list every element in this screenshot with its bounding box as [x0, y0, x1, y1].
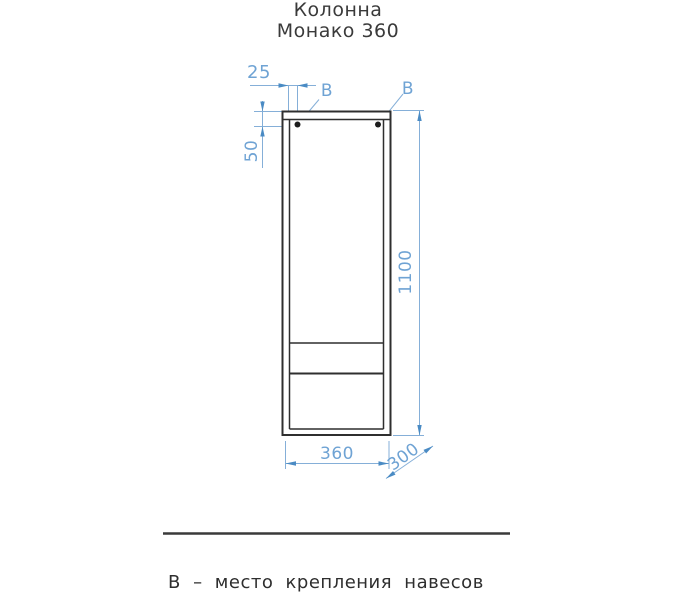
cabinet-outer-rect: [283, 112, 391, 436]
dim-360-label: 360: [317, 444, 357, 464]
dim-25-label: 25: [242, 62, 276, 83]
mount-label-b-right: В: [397, 79, 419, 99]
dim-25-arrow-right: [298, 83, 308, 88]
legend-note: В – место крепления навесов: [168, 572, 484, 593]
mount-dot-left: [295, 122, 301, 128]
dim-1100-arrow-bottom: [417, 425, 421, 436]
mount-dot-right: [375, 122, 381, 128]
dim-50-arrow-top: [260, 102, 264, 112]
cabinet-outline: [283, 112, 391, 436]
mount-label-b-left: В: [316, 81, 338, 101]
dim-25-arrow-left: [279, 83, 289, 88]
technical-drawing-page: Колонна Монако 360: [0, 0, 675, 600]
dim-1100-label: 1100: [397, 242, 415, 302]
dim-1100-arrow-top: [417, 111, 421, 122]
dim-50-label: 50: [243, 131, 261, 171]
dim-360-arrow-left: [286, 461, 297, 465]
